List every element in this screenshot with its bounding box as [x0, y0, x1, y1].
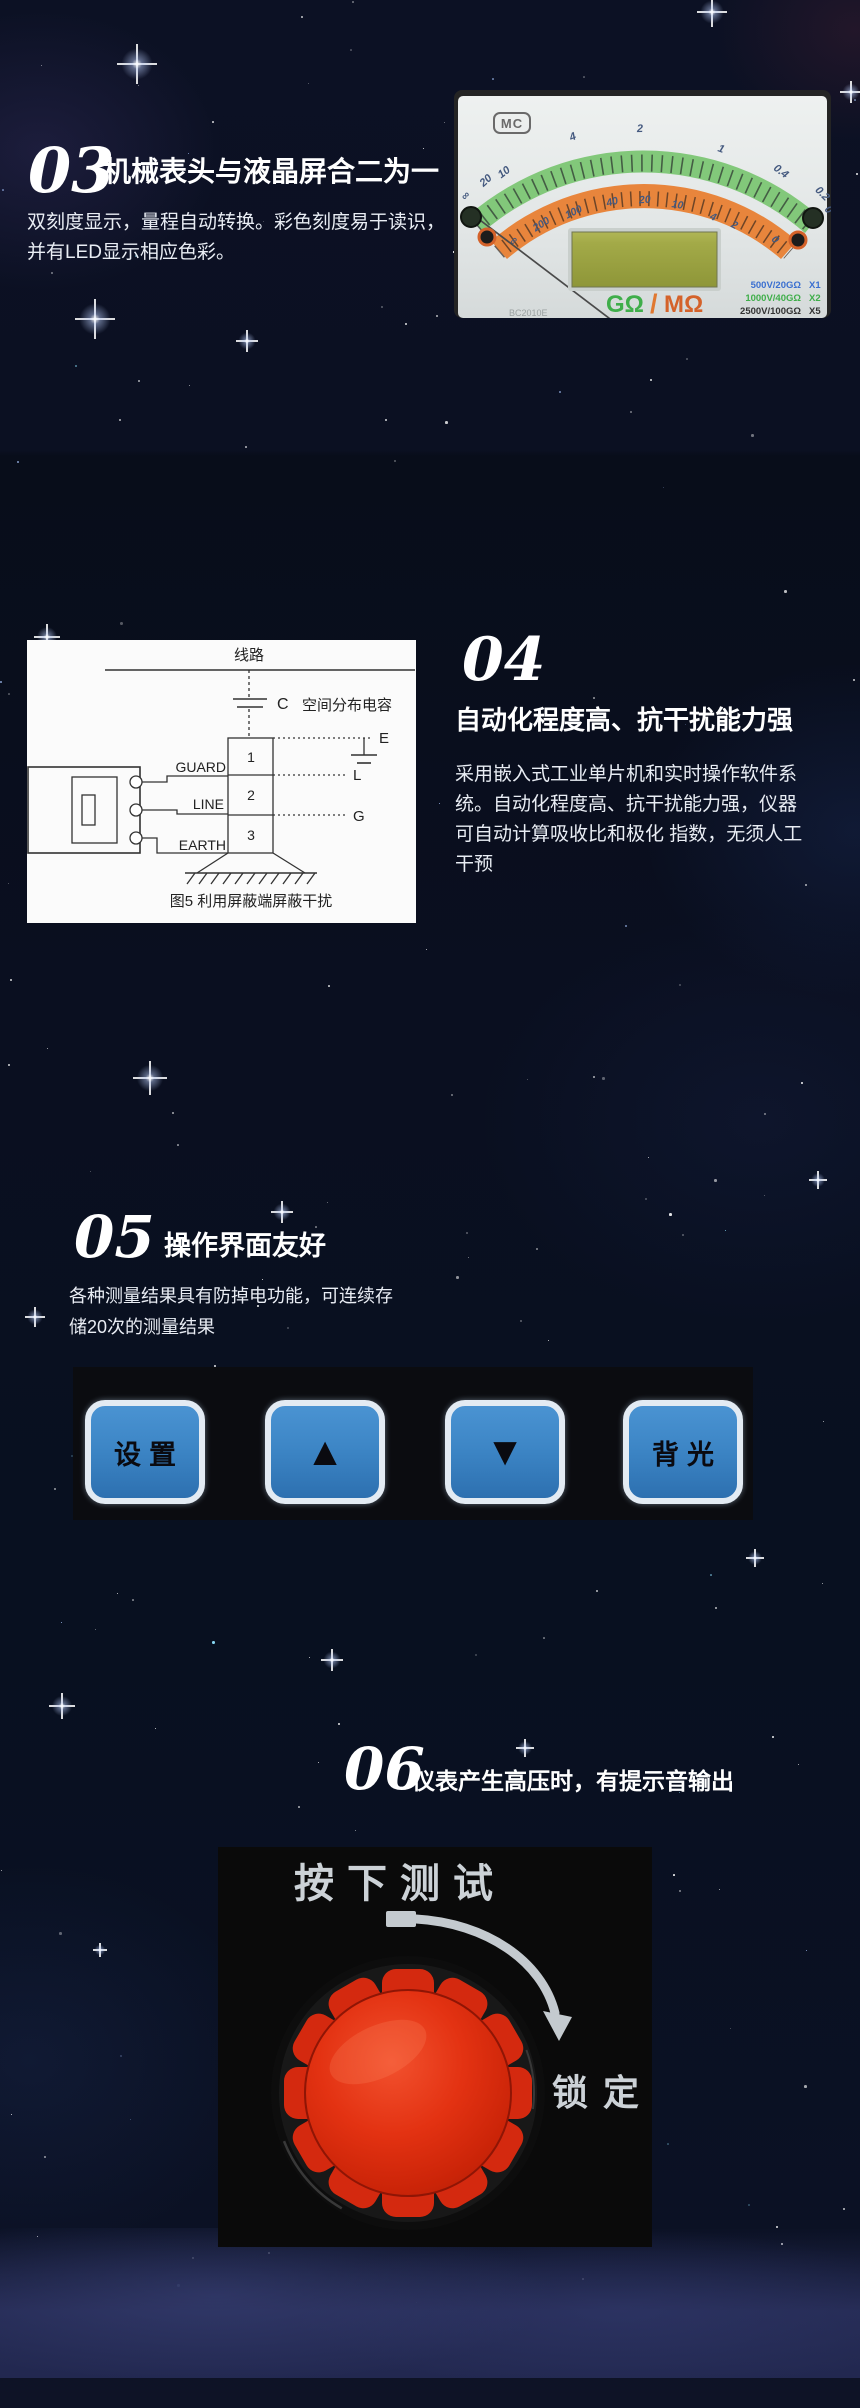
section-03-body-line1: 双刻度显示，量程自动转换。彩色刻度易于读识， [27, 208, 445, 238]
star-sparkle [746, 1549, 764, 1567]
section-04-number: 04 [462, 630, 546, 690]
section-03-number: 03 [28, 140, 114, 202]
terminal-label-earth: EARTH [179, 837, 226, 853]
guard-wire [140, 776, 228, 782]
star-sparkle [236, 330, 258, 352]
svg-text:X2: X2 [809, 293, 821, 304]
star-sparkle [117, 44, 157, 84]
lcd-screen [572, 232, 717, 287]
cap-symbol: C [277, 696, 289, 713]
svg-text:500V/20GΩ: 500V/20GΩ [751, 280, 802, 291]
star-sparkle [93, 1943, 107, 1957]
svg-text:GΩ: GΩ [606, 291, 644, 318]
svg-text:X5: X5 [809, 306, 821, 317]
cell-3: 3 [247, 827, 255, 843]
wiring-diagram: 线路 C 空间分布电容 GUARD LINE EARTH 1 2 3 E L G… [27, 640, 416, 923]
keypad-photo: 设置 ▲ ▼ 背光 [73, 1367, 753, 1520]
instrument-slot [82, 795, 95, 825]
svg-text:2500V/100GΩ: 2500V/100GΩ [740, 306, 801, 317]
svg-text:20: 20 [638, 194, 652, 207]
wiring-diagram-graphic: 线路 C 空间分布电容 GUARD LINE EARTH 1 2 3 E L G… [27, 640, 416, 923]
svg-text:MC: MC [501, 116, 523, 131]
terminal-label-guard: GUARD [175, 759, 226, 775]
star-sparkle [49, 1693, 75, 1719]
star-sparkle [133, 1061, 167, 1095]
svg-text:10: 10 [671, 198, 684, 212]
section-05-body: 各种测量结果具有防掉电功能，可连续存 储20次的测量结果 [69, 1281, 393, 1343]
section-05-body-line1: 各种测量结果具有防掉电功能，可连续存 [69, 1281, 393, 1312]
backlight-button: 背光 [623, 1400, 743, 1504]
section-04-title: 自动化程度高、抗干扰能力强 [455, 700, 793, 737]
section-03-body: 双刻度显示，量程自动转换。彩色刻度易于读识， 并有LED显示相应色彩。 [27, 208, 445, 268]
diagram-top-label: 线路 [234, 647, 264, 664]
nebula-clouds [0, 2228, 860, 2378]
section-03-body-line2: 并有LED显示相应色彩。 [27, 238, 445, 268]
meter-subrange: 4GΩ—1000MΩ [604, 317, 687, 318]
section-04-body-line2: 统。自动化程度高、抗干扰能力强，仪器 [455, 790, 802, 820]
screw-right-inner [790, 232, 806, 248]
lock-label: 锁定 [552, 2072, 652, 2113]
setup-button: 设置 [85, 1400, 205, 1504]
section-05-number: 05 [74, 1208, 155, 1266]
terminal-line [130, 804, 142, 816]
meter-photo: MC ∞ 20 10 4 2 1 0.4 0.2 0 ∞ [454, 90, 831, 318]
svg-text:1000V/40GΩ: 1000V/40GΩ [745, 293, 801, 304]
unit-labels: GΩ / MΩ [606, 289, 703, 318]
section-05-body-line2: 储20次的测量结果 [69, 1312, 393, 1343]
bottom-starfield-band [0, 2378, 860, 2408]
section-05-title: 操作界面友好 [164, 1224, 326, 1263]
press-to-test-label: 按下测试 [294, 1862, 506, 1906]
terminal-earth [130, 832, 142, 844]
down-arrow-button: ▼ [445, 1400, 565, 1504]
up-arrow-button: ▲ [265, 1400, 385, 1504]
instrument-body [28, 767, 140, 853]
section-04-body: 采用嵌入式工业单片机和实时操作软件系 统。自动化程度高、抗干扰能力强，仪器 可自… [455, 760, 802, 880]
meter-model: BC2010E [509, 308, 548, 318]
svg-text:2: 2 [636, 123, 644, 135]
star-sparkle [516, 1739, 534, 1757]
svg-text:MΩ: MΩ [664, 291, 703, 318]
section-04-body-line1: 采用嵌入式工业单片机和实时操作软件系 [455, 760, 802, 790]
star-sparkle [271, 1201, 293, 1223]
section-04-body-line3: 可自动计算吸收比和极化 指数，无须人工 [455, 820, 802, 850]
svg-text:X1: X1 [809, 280, 821, 291]
cap-desc: 空间分布电容 [302, 697, 392, 714]
ground-hatch [187, 873, 315, 884]
right-label-e: E [379, 730, 389, 747]
knob [226, 1911, 589, 2247]
star-sparkle [697, 0, 727, 27]
cell-1: 1 [247, 749, 255, 765]
test-knob-graphic: 按下测试 [218, 1847, 652, 2247]
diagram-caption: 图5 利用屏蔽端屏蔽干扰 [170, 893, 333, 910]
range-table: 500V/20GΩ X1 1000V/40GΩ X2 2500V/100GΩ X… [740, 280, 826, 318]
star-sparkle [809, 1171, 827, 1189]
right-label-l: L [353, 767, 361, 784]
star-sparkle [840, 81, 860, 103]
test-knob-photo: 按下测试 [218, 1847, 652, 2247]
terminal-guard [130, 776, 142, 788]
screw-left-outer [461, 207, 481, 227]
screw-left-inner [479, 229, 495, 245]
terminal-label-line: LINE [193, 796, 224, 812]
star-sparkle [321, 1649, 343, 1671]
screw-right-outer [803, 208, 823, 228]
star-sparkle [75, 299, 115, 339]
section-06-title: 仪表产生高压时，有提示音输出 [412, 1762, 734, 1796]
svg-text:/: / [650, 289, 658, 318]
section-03-title: 机械表头与液晶屏合二为一 [103, 150, 439, 190]
right-label-g: G [353, 808, 365, 825]
section-04-body-line4: 干预 [455, 850, 802, 880]
star-sparkle [25, 1307, 45, 1327]
page-canvas: 03 机械表头与液晶屏合二为一 双刻度显示，量程自动转换。彩色刻度易于读识， 并… [0, 0, 860, 2408]
analog-meter-graphic: MC ∞ 20 10 4 2 1 0.4 0.2 0 ∞ [454, 90, 831, 318]
cell-2: 2 [247, 787, 255, 803]
